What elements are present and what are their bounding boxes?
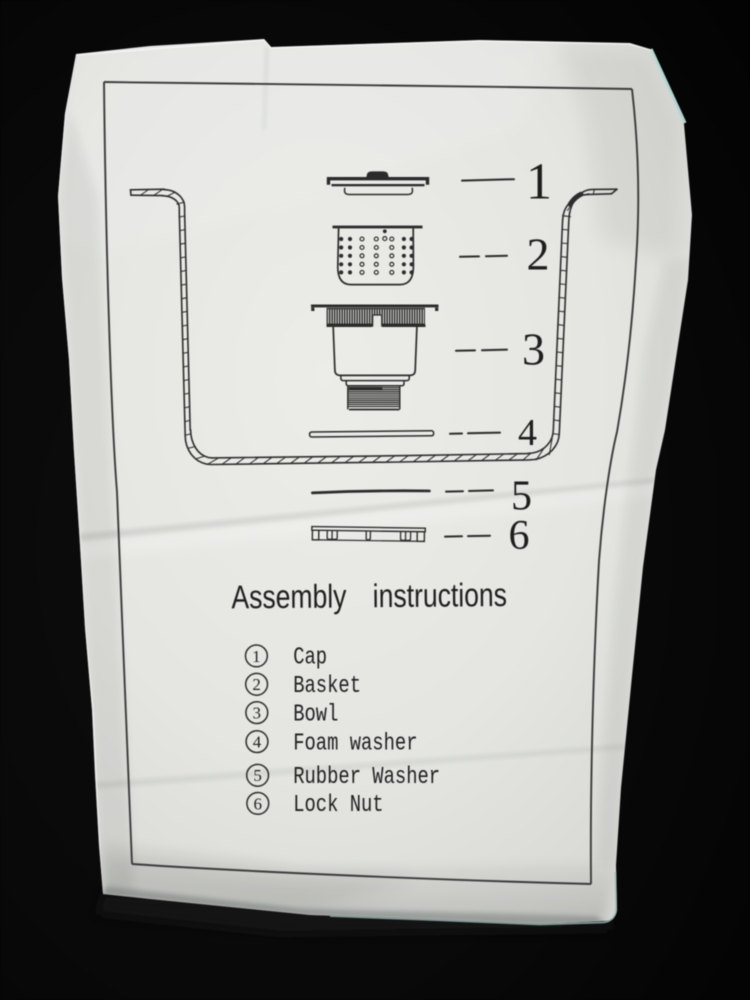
svg-text:5: 5: [253, 766, 262, 785]
svg-text:Lock Nut: Lock Nut: [293, 792, 383, 819]
svg-text:Cap: Cap: [293, 645, 327, 672]
svg-text:2: 2: [527, 229, 550, 280]
svg-text:3: 3: [522, 324, 545, 375]
svg-text:1: 1: [252, 647, 261, 666]
svg-text:6: 6: [509, 513, 530, 559]
svg-text:Foam washer: Foam washer: [293, 730, 417, 757]
svg-text:3: 3: [253, 704, 262, 723]
svg-text:2: 2: [252, 675, 261, 694]
svg-text:Basket: Basket: [293, 673, 361, 700]
svg-text:4: 4: [253, 733, 262, 752]
svg-text:instructions: instructions: [373, 577, 508, 615]
svg-text:Bowl: Bowl: [293, 701, 338, 728]
svg-text:Assembly: Assembly: [231, 579, 346, 616]
svg-text:Rubber Washer: Rubber Washer: [293, 764, 440, 791]
svg-text:4: 4: [518, 412, 537, 454]
svg-text:6: 6: [254, 794, 263, 813]
svg-text:1: 1: [526, 154, 552, 211]
